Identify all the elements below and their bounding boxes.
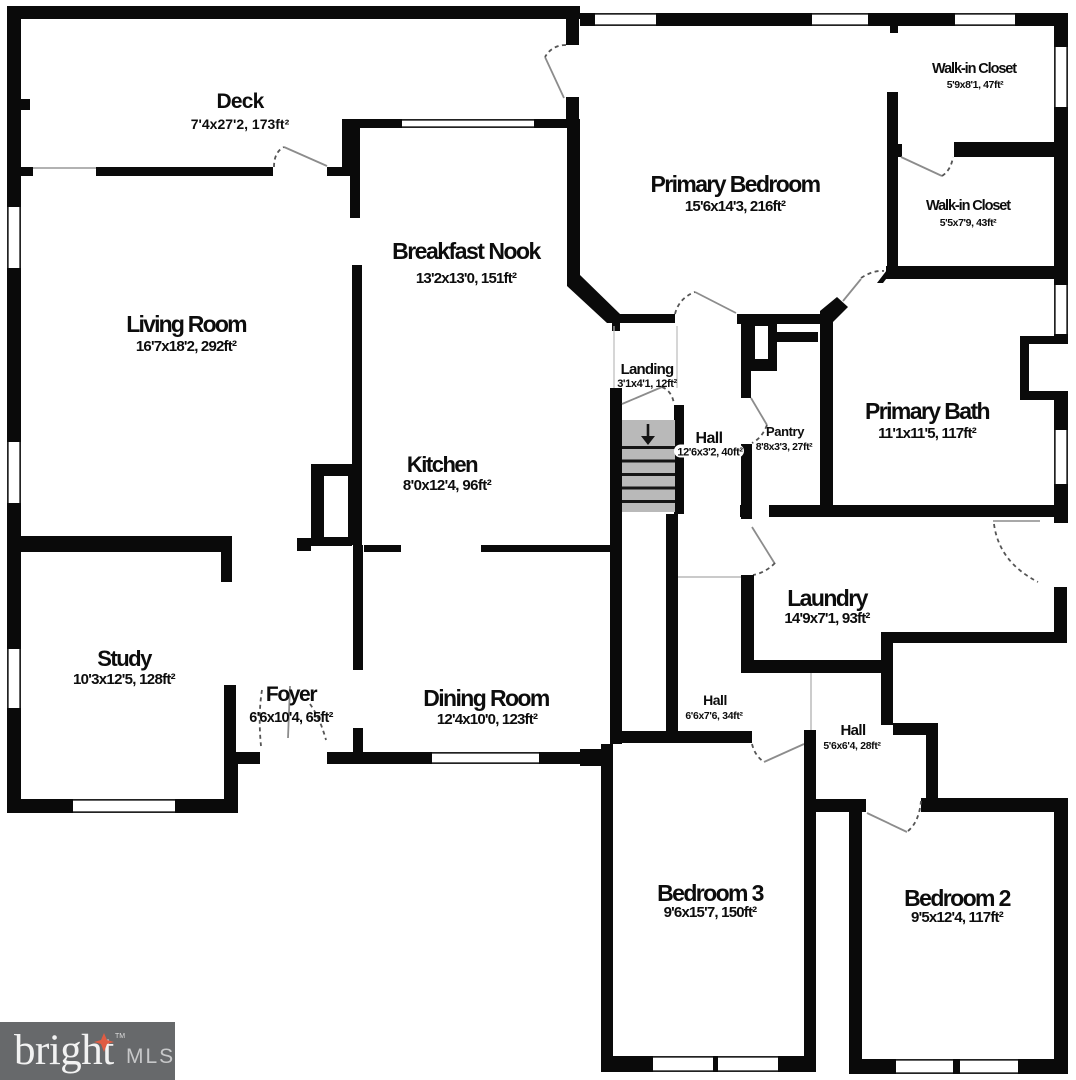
svg-text:Study: Study bbox=[97, 646, 153, 671]
svg-text:Walk-in Closet: Walk-in Closet bbox=[932, 61, 1017, 77]
svg-text:Living Room: Living Room bbox=[126, 311, 247, 337]
svg-text:14'9x7'1, 93ft²: 14'9x7'1, 93ft² bbox=[784, 610, 870, 627]
svg-text:Landing: Landing bbox=[621, 361, 674, 378]
svg-text:MLS: MLS bbox=[126, 1045, 175, 1068]
svg-text:Walk-in Closet: Walk-in Closet bbox=[926, 198, 1011, 214]
svg-text:Laundry: Laundry bbox=[787, 585, 868, 611]
svg-text:6'6x7'6, 34ft²: 6'6x7'6, 34ft² bbox=[685, 711, 743, 722]
svg-text:13'2x13'0, 151ft²: 13'2x13'0, 151ft² bbox=[416, 270, 517, 287]
svg-text:Primary Bedroom: Primary Bedroom bbox=[650, 171, 820, 197]
svg-text:12'4x10'0, 123ft²: 12'4x10'0, 123ft² bbox=[437, 711, 538, 728]
svg-text:Breakfast Nook: Breakfast Nook bbox=[392, 238, 541, 264]
svg-text:Hall: Hall bbox=[840, 722, 866, 739]
svg-text:Foyer: Foyer bbox=[266, 683, 317, 706]
svg-text:Pantry: Pantry bbox=[766, 424, 805, 439]
svg-text:Deck: Deck bbox=[216, 90, 264, 113]
svg-text:bright: bright bbox=[14, 1027, 114, 1074]
svg-text:7'4x27'2, 173ft²: 7'4x27'2, 173ft² bbox=[191, 116, 290, 132]
svg-text:Hall: Hall bbox=[696, 430, 723, 447]
svg-text:8'8x3'3, 27ft²: 8'8x3'3, 27ft² bbox=[756, 441, 813, 453]
svg-text:Kitchen: Kitchen bbox=[407, 452, 478, 477]
svg-text:Dining Room: Dining Room bbox=[423, 685, 550, 711]
svg-text:TM: TM bbox=[115, 1033, 125, 1040]
svg-text:Hall: Hall bbox=[703, 692, 727, 708]
svg-text:16'7x18'2, 292ft²: 16'7x18'2, 292ft² bbox=[136, 338, 237, 355]
svg-text:9'6x15'7, 150ft²: 9'6x15'7, 150ft² bbox=[664, 904, 758, 921]
svg-text:9'5x12'4, 117ft²: 9'5x12'4, 117ft² bbox=[911, 909, 1004, 926]
svg-text:10'3x12'5, 128ft²: 10'3x12'5, 128ft² bbox=[73, 671, 176, 688]
svg-text:15'6x14'3, 216ft²: 15'6x14'3, 216ft² bbox=[685, 198, 786, 215]
svg-text:5'6x6'4, 28ft²: 5'6x6'4, 28ft² bbox=[823, 741, 881, 752]
svg-text:5'5x7'9, 43ft²: 5'5x7'9, 43ft² bbox=[940, 217, 997, 229]
svg-text:Bedroom 2: Bedroom 2 bbox=[904, 885, 1011, 911]
svg-text:8'0x12'4, 96ft²: 8'0x12'4, 96ft² bbox=[403, 477, 492, 494]
svg-text:12'6x3'2, 40ft²: 12'6x3'2, 40ft² bbox=[677, 447, 743, 459]
svg-text:Primary Bath: Primary Bath bbox=[865, 398, 990, 424]
svg-text:Bedroom 3: Bedroom 3 bbox=[657, 880, 764, 906]
svg-text:6'6x10'4, 65ft²: 6'6x10'4, 65ft² bbox=[249, 710, 333, 726]
svg-text:5'9x8'1, 47ft²: 5'9x8'1, 47ft² bbox=[947, 79, 1004, 91]
svg-text:3'1x4'1, 12ft²: 3'1x4'1, 12ft² bbox=[617, 378, 677, 390]
svg-text:11'1x11'5, 117ft²: 11'1x11'5, 117ft² bbox=[878, 425, 977, 442]
